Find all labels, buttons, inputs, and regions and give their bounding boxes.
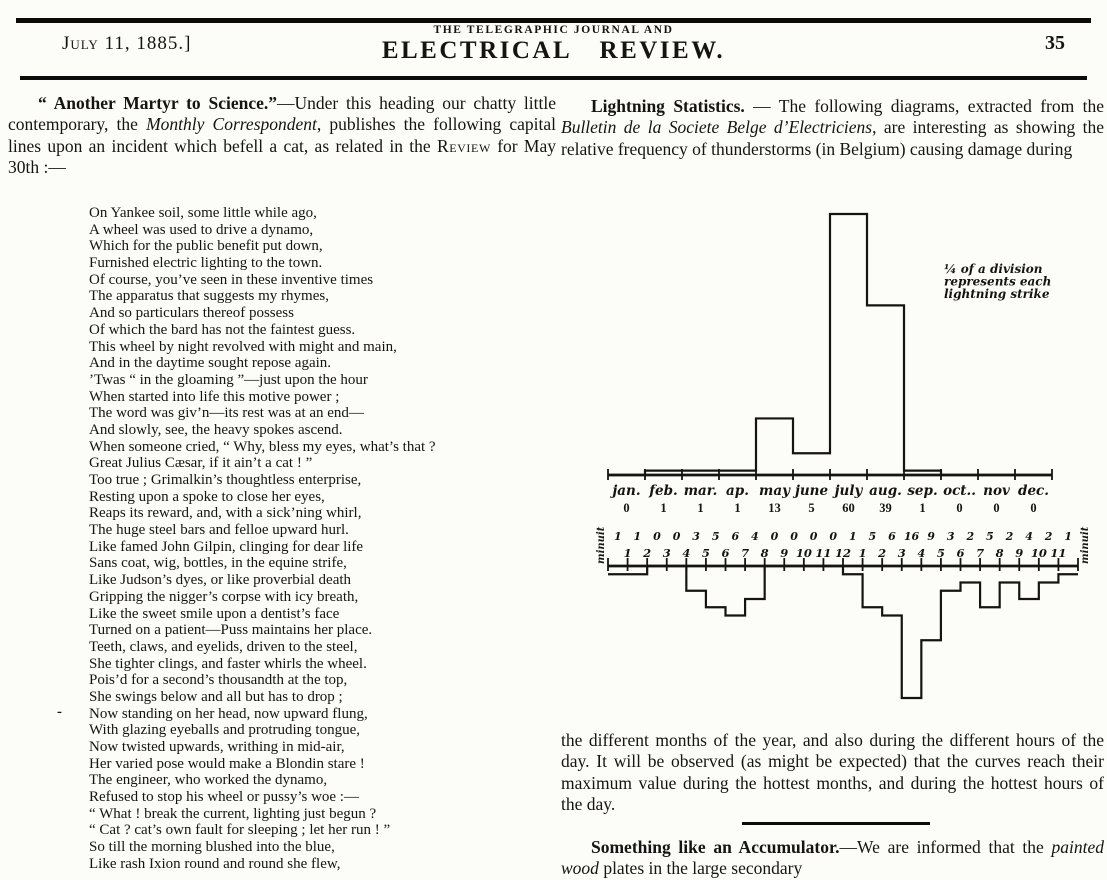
hour-label: 4: [917, 546, 925, 560]
midnight-label-left: minuit: [596, 526, 607, 564]
page-number: 35: [1045, 32, 1065, 55]
month-value: 0: [1030, 501, 1036, 515]
accumulator-intro-paragraph: Something like an Accumulator.—We are in…: [561, 837, 1104, 880]
hour-label: 3: [663, 546, 671, 560]
poem-line: A wheel was used to drive a dynamo,: [89, 222, 436, 239]
hour-label: 3: [898, 546, 906, 560]
month-label: ap.: [726, 483, 749, 499]
poem-line: Like Judson’s dyes, or like proverbial d…: [89, 572, 436, 589]
hour-label: 5: [937, 546, 945, 560]
hour-value: 0: [829, 530, 837, 543]
hour-value: 0: [810, 530, 818, 543]
martyr-intro-paragraph: “ Another Martyr to Science.”—Under this…: [8, 93, 556, 178]
poem-line: Teeth, claws, and eyelids, driven to the…: [89, 639, 436, 656]
poem: On Yankee soil, some little while ago, A…: [89, 205, 436, 873]
poem-line: Like the sweet smile upon a dentist’s fa…: [89, 606, 436, 623]
text-segment-plain: —We are informed that the: [840, 837, 1052, 857]
text-segment-bold: Something like an Accumulator.: [591, 837, 840, 857]
month-value: 13: [768, 501, 781, 515]
hour-value: 5: [986, 530, 994, 543]
hour-value: 5: [869, 530, 877, 543]
month-value: 0: [956, 501, 962, 515]
text-segment-italic: Bulletin de la Societe Belge d’Electrici…: [561, 117, 872, 137]
hour-label: 9: [780, 546, 788, 560]
hour-value: 2: [965, 530, 974, 543]
lightning-charts: jan.feb.mar.ap.mayjunejulyaug.sep.oct..n…: [592, 200, 1104, 718]
month-value: 60: [842, 501, 855, 515]
hour-value: 0: [771, 530, 779, 543]
masthead: THE TELEGRAPHIC JOURNAL AND ELECTRICAL R…: [0, 24, 1107, 65]
chart-annotation: ¼ of a divisionrepresents eachlightning …: [944, 262, 1051, 301]
poem-line: “ What ! break the current, lighting jus…: [89, 806, 436, 823]
hour-label: 10: [1031, 546, 1047, 560]
lightning-intro-paragraph: Lightning Statistics. — The following di…: [561, 96, 1104, 160]
poem-line: Her varied pose would make a Blondin sta…: [89, 756, 436, 773]
poem-line: Sans coat, wig, bottles, in the equine s…: [89, 555, 436, 572]
hour-value: 1: [614, 530, 622, 543]
month-value: 1: [660, 501, 666, 515]
poem-line: She tighter clings, and faster whirls th…: [89, 656, 436, 673]
hour-value: 0: [790, 530, 798, 543]
hour-label: 6: [956, 546, 964, 560]
month-label: may: [759, 483, 791, 499]
midnight-label-right: minuit: [1080, 526, 1091, 564]
hour-label: 1: [859, 546, 867, 560]
text-segment-plain: — The following diagrams, extracted from…: [745, 96, 1104, 116]
hour-value: 3: [692, 530, 700, 543]
text-segment-italic: Monthly Correspondent: [146, 114, 317, 134]
month-value: 0: [623, 501, 629, 515]
month-value: 39: [879, 501, 892, 515]
poem-line: And so particulars thereof possess: [89, 305, 436, 322]
hour-label: 10: [796, 546, 812, 560]
hour-label: 5: [702, 546, 710, 560]
hour-label: 11: [1050, 546, 1066, 560]
text-segment-smallcaps: Review: [437, 136, 491, 156]
masthead-rule: [20, 76, 1087, 80]
poem-line: And slowly, see, the heavy spokes ascend…: [89, 422, 436, 439]
hour-label: 2: [642, 546, 651, 560]
monthly-chart: jan.feb.mar.ap.mayjunejulyaug.sep.oct..n…: [608, 214, 1052, 515]
poem-line: Refused to stop his wheel or pussy’s woe…: [89, 789, 436, 806]
month-label: june: [792, 483, 829, 499]
poem-line: Like famed John Gilpin, clinging for dea…: [89, 539, 436, 556]
poem-line: The huge steel bars and felloe upward hu…: [89, 522, 436, 539]
journal-title: ELECTRICAL REVIEW.: [0, 37, 1107, 65]
hour-value: 16: [904, 530, 920, 543]
hour-label: 11: [815, 546, 831, 560]
text-segment-plain: plates in the large secondary: [599, 858, 802, 878]
poem-line: When someone cried, “ Why, bless my eyes…: [89, 439, 436, 456]
hour-value: 0: [673, 530, 681, 543]
hour-label: 9: [1015, 546, 1023, 560]
text-segment-bold: “ Another Martyr to Science.”: [38, 93, 277, 113]
month-label: dec.: [1018, 483, 1049, 499]
month-value: 5: [808, 501, 814, 515]
poem-line: The engineer, who worked the dynamo,: [89, 772, 436, 789]
section-separator-rule: [742, 822, 930, 825]
hour-label: 1: [624, 546, 632, 560]
hour-value: 2: [1044, 530, 1053, 543]
poem-line: The word was giv’n—its rest was at an en…: [89, 405, 436, 422]
hour-value: 4: [1025, 530, 1033, 543]
poem-line: “ Cat ? cat’s own fault for sleeping ; l…: [89, 822, 436, 839]
month-label: nov: [983, 483, 1010, 499]
poem-line: Turned on a patient—Puss maintains her p…: [89, 622, 436, 639]
poem-line: Great Julius Cæsar, if it ain’t a cat ! …: [89, 455, 436, 472]
top-rule: [16, 18, 1091, 23]
hour-label: 2: [877, 546, 886, 560]
poem-line: Of which the bard has not the faintest g…: [89, 322, 436, 339]
poem-line: With glazing eyeballs and protruding ton…: [89, 722, 436, 739]
month-label: oct..: [943, 483, 976, 499]
hour-value: 6: [888, 530, 896, 543]
poem-line: Too true ; Grimalkin’s thoughtless enter…: [89, 472, 436, 489]
month-value: 1: [697, 501, 703, 515]
hour-value: 4: [751, 530, 759, 543]
poem-line: Resting upon a spoke to close her eyes,: [89, 489, 436, 506]
poem-line: Like rash Ixion round and round she flew…: [89, 856, 436, 873]
hourly-chart: 1234567891011121234567891011110035640000…: [596, 526, 1091, 698]
poem-line: Gripping the nigger’s corpse with icy br…: [89, 589, 436, 606]
chart-discussion-paragraph: the different months of the year, and al…: [561, 730, 1104, 815]
poem-line: When started into life this motive power…: [89, 389, 436, 406]
poem-line: She swings below and all but has to drop…: [89, 689, 436, 706]
hour-value: 2: [1005, 530, 1014, 543]
hour-label: 7: [741, 546, 749, 560]
hour-label: 8: [996, 546, 1004, 560]
poem-line: Reaps its reward, and, with a sick’ning …: [89, 505, 436, 522]
month-label: jan.: [609, 483, 640, 499]
hour-value: 6: [731, 530, 739, 543]
poem-line: Now twisted upwards, writhing in mid-air…: [89, 739, 436, 756]
poem-line: This wheel by night revolved with might …: [89, 339, 436, 356]
hour-label: 6: [721, 546, 729, 560]
poem-line: Now standing on her head, now upward flu…: [89, 706, 436, 723]
month-label: july: [832, 483, 864, 499]
hour-value: 3: [947, 530, 955, 543]
hour-label: 7: [976, 546, 984, 560]
hour-value: 1: [849, 530, 857, 543]
hour-value: 9: [927, 530, 935, 543]
month-label: feb.: [648, 483, 678, 499]
poem-line: On Yankee soil, some little while ago,: [89, 205, 436, 222]
poem-line: ’Twas “ in the gloaming ”—just upon the …: [89, 372, 436, 389]
text-segment-bold: Lightning Statistics.: [591, 96, 745, 116]
svg-text:lightning strike: lightning strike: [944, 287, 1050, 301]
poem-line: So till the morning blushed into the blu…: [89, 839, 436, 856]
month-label: sep.: [907, 483, 937, 499]
hour-value: 1: [634, 530, 642, 543]
margin-dash: -: [57, 704, 62, 721]
hour-value: 5: [712, 530, 720, 543]
hour-label: 8: [761, 546, 769, 560]
month-label: aug.: [869, 483, 902, 499]
poem-line: Which for the public benefit put down,: [89, 238, 436, 255]
poem-line: The apparatus that suggests my rhymes,: [89, 288, 436, 305]
journal-page: July 11, 1885.] THE TELEGRAPHIC JOURNAL …: [0, 0, 1107, 874]
month-value: 0: [993, 501, 999, 515]
month-value: 1: [919, 501, 925, 515]
journal-supertitle: THE TELEGRAPHIC JOURNAL AND: [0, 24, 1107, 36]
poem-line: Pois’d for a second’s thousandth at the …: [89, 672, 436, 689]
month-value: 1: [734, 501, 740, 515]
poem-line: And in the daytime sought repose again.: [89, 355, 436, 372]
month-label: mar.: [684, 483, 718, 499]
hour-label: 4: [682, 546, 690, 560]
poem-line: Of course, you’ve seen in these inventiv…: [89, 272, 436, 289]
hour-value: 0: [653, 530, 661, 543]
hour-label: 12: [835, 546, 851, 560]
hour-value: 1: [1064, 530, 1072, 543]
poem-line: Furnished electric lighting to the town.: [89, 255, 436, 272]
